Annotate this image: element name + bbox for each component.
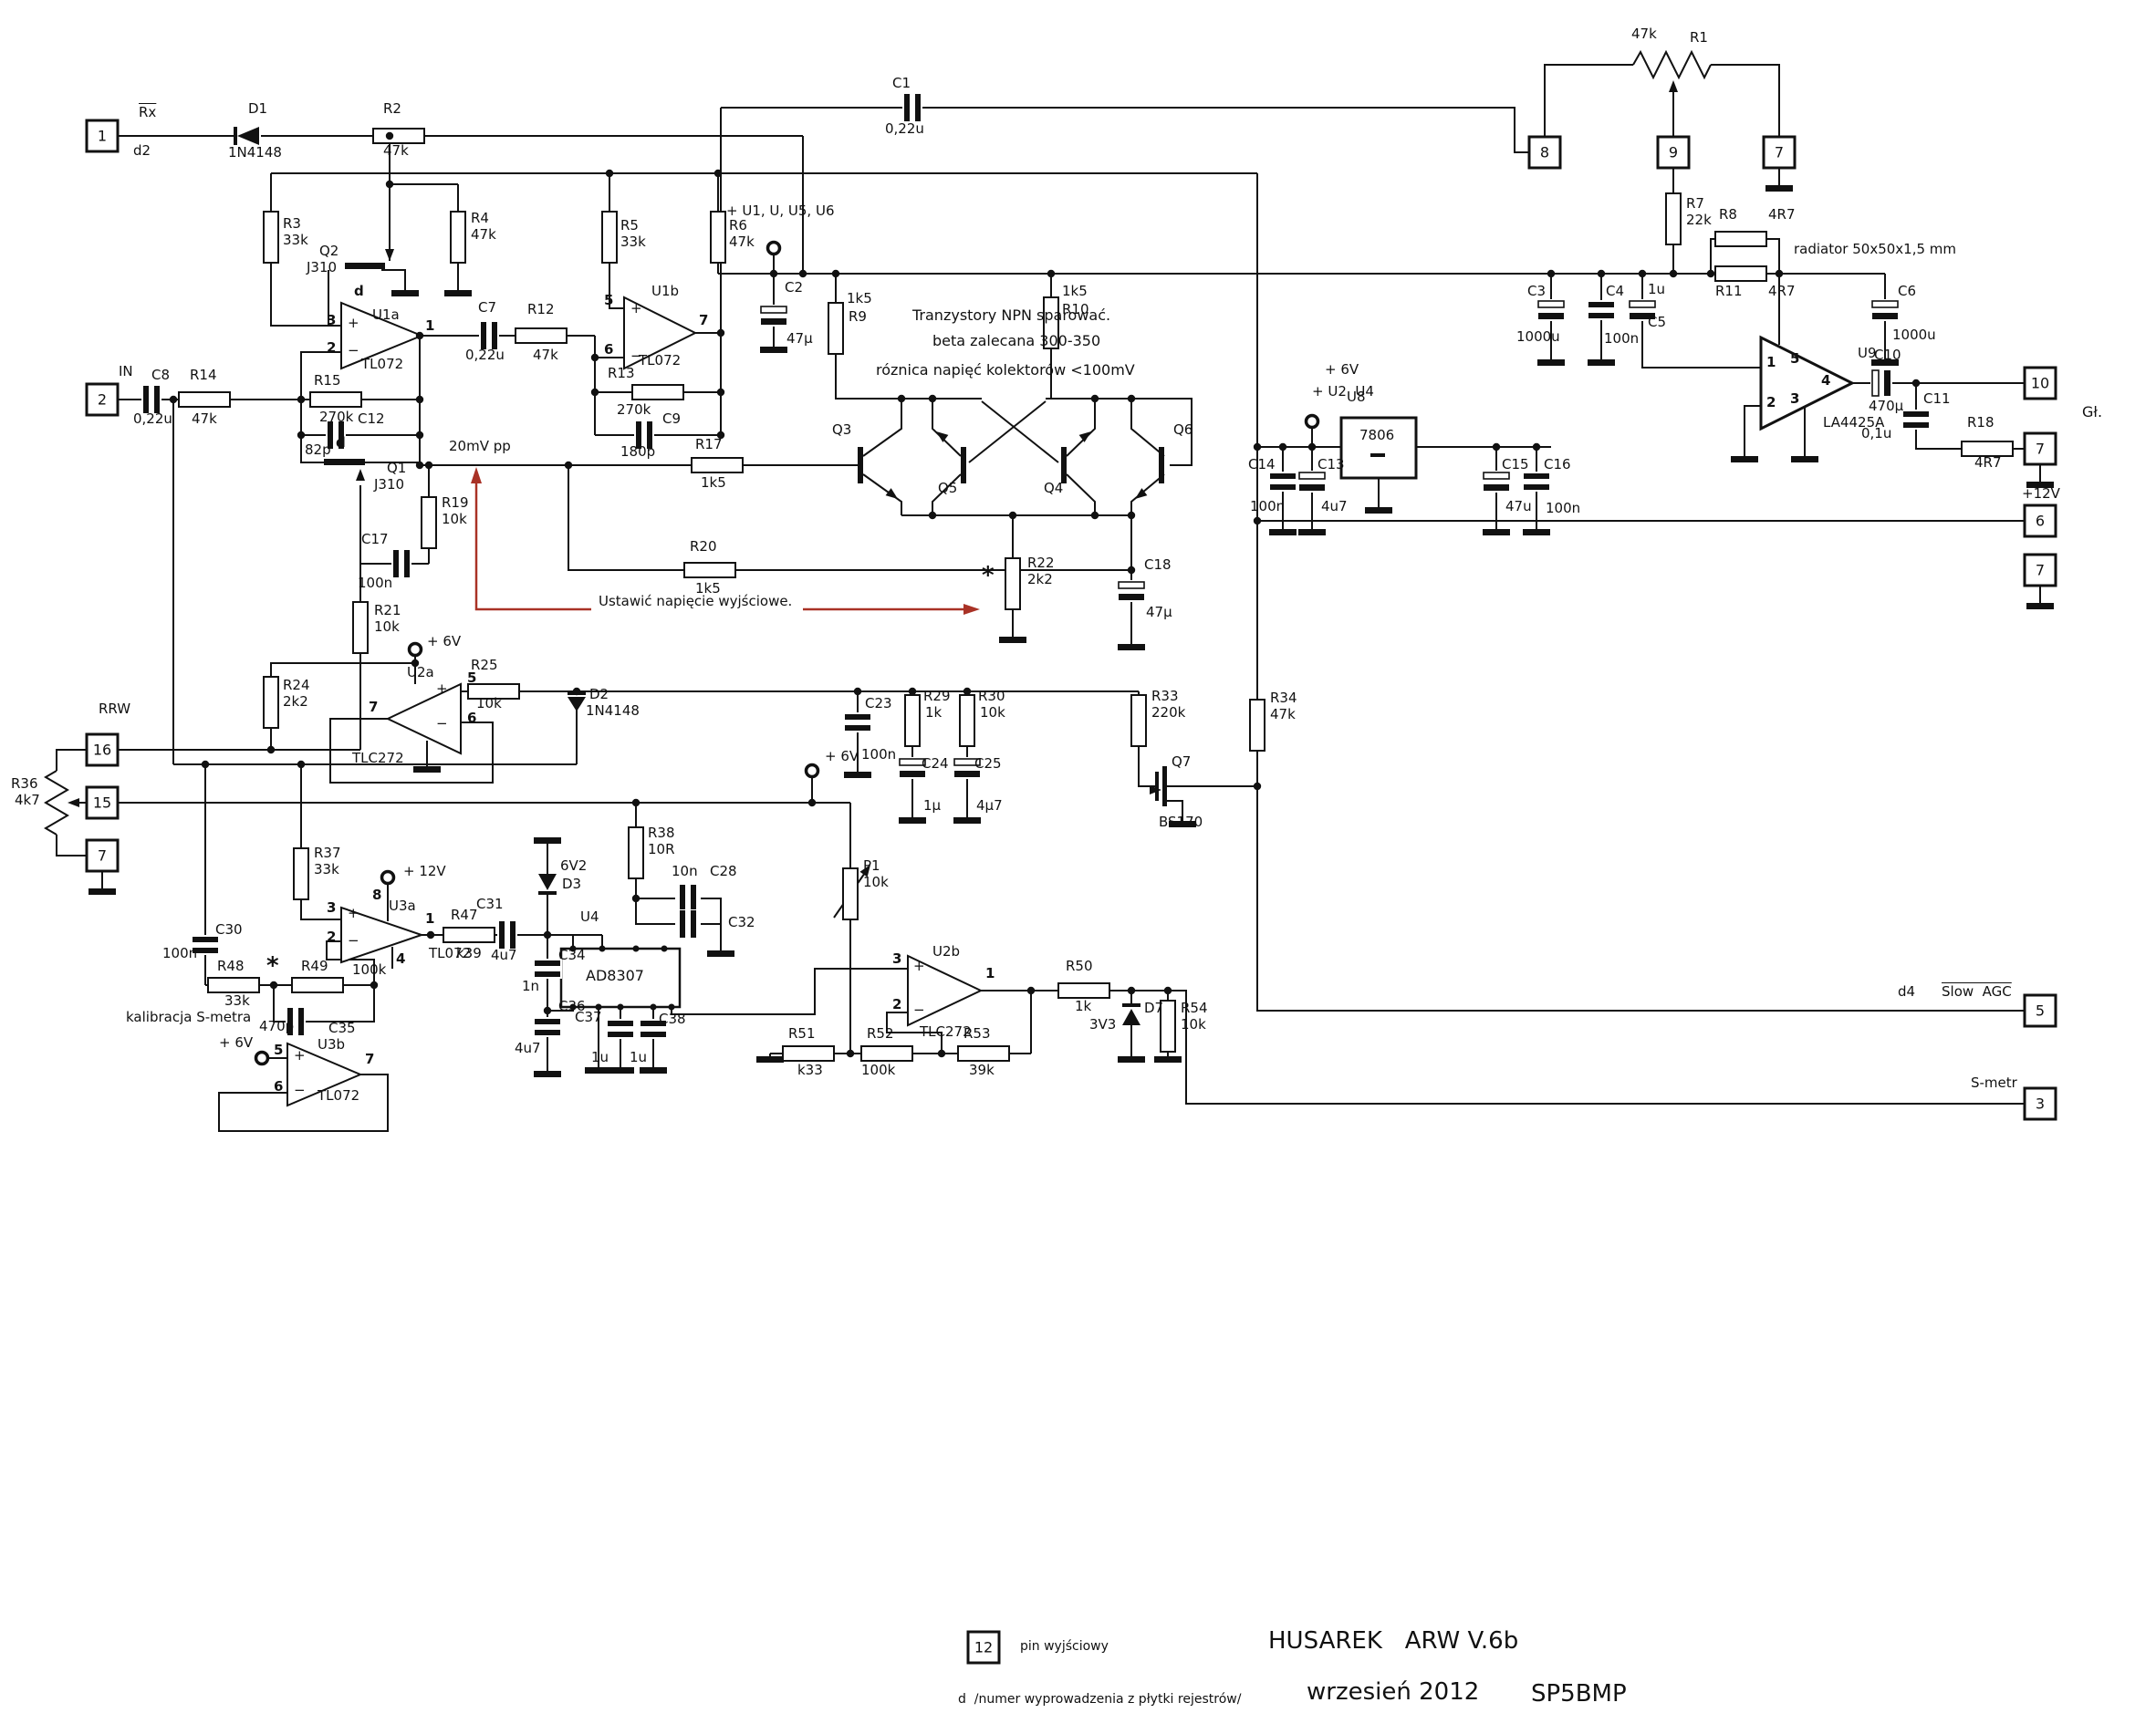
schematic-label: d4	[1898, 985, 1915, 1000]
transistor-Q7-channel-bar	[1162, 766, 1167, 806]
schematic-label: C3	[1527, 285, 1546, 299]
schematic-label: −	[348, 344, 359, 358]
connector-pin-8: 8	[1528, 136, 1562, 170]
schematic-label: R4	[471, 212, 489, 226]
schematic-label: 47k	[1270, 708, 1296, 722]
schematic-label: 4u7	[1321, 500, 1348, 514]
resistor-R13	[632, 385, 683, 400]
resistor-R49	[292, 978, 343, 992]
schematic-label: 0,22u	[885, 122, 924, 137]
schematic-label: +	[348, 907, 359, 921]
transistor-Q4-bar	[1061, 447, 1067, 483]
schematic-label: 47u	[1505, 500, 1532, 514]
annotation-arrow-up	[471, 467, 482, 483]
resistor-R11	[1715, 266, 1766, 281]
resistor-R51	[783, 1046, 834, 1061]
schematic-label: C2	[785, 281, 803, 296]
schematic-label: 1	[425, 912, 434, 927]
schematic-label: 0,22u	[465, 348, 505, 363]
schematic-label: beta zalecana 300-350	[932, 334, 1100, 349]
schematic-label: S-metr	[1971, 1076, 2017, 1091]
schematic-label: 4u7	[491, 949, 517, 963]
schematic-label: + 6V	[427, 635, 461, 649]
schematic-label: C14	[1248, 458, 1276, 472]
schematic-label: U2b	[932, 945, 960, 960]
schematic-label: Q5	[938, 482, 957, 496]
schematic-label: −	[436, 717, 448, 732]
schematic-label: +12V	[2022, 487, 2060, 502]
schematic-label: C38	[659, 1012, 686, 1027]
resistor-R48	[208, 978, 259, 992]
transistor-Q3-bar	[858, 447, 863, 483]
connector-pin-16: 16	[86, 733, 120, 767]
schematic-label: C10	[1874, 348, 1901, 363]
schematic-label: 4R7	[1768, 285, 1796, 299]
connector-pin-7: 7	[1763, 136, 1797, 170]
schematic-label: 1u	[591, 1051, 609, 1065]
transistor-Q7-gate-bar	[1155, 772, 1159, 801]
schematic-label: R22	[1027, 556, 1055, 571]
schematic-label: C8	[151, 369, 170, 383]
schematic-label: k39	[456, 947, 482, 961]
schematic-label: + U1, U, U5, U6	[726, 204, 835, 219]
capacitor-C6	[1870, 299, 1900, 321]
schematic-label: C6	[1898, 285, 1916, 299]
schematic-label: Q1	[387, 462, 406, 476]
resistor-R12	[516, 328, 567, 343]
resistor-R50	[1058, 983, 1109, 998]
schematic-label: 10R	[648, 843, 675, 857]
schematic-label: R47	[451, 908, 478, 923]
schematic-label: R19	[442, 496, 469, 511]
schematic-label: C30	[215, 923, 243, 938]
schematic-label: 10k	[476, 697, 502, 711]
schematic-label: R14	[190, 369, 217, 383]
resistor-R53	[958, 1046, 1009, 1061]
resistor-R33	[1131, 695, 1146, 746]
schematic-label: R29	[923, 690, 951, 704]
schematic-label: + 6V	[1325, 363, 1359, 378]
schematic-label: R53	[963, 1027, 991, 1042]
schematic-label: J310	[374, 478, 404, 493]
schematic-label: 2	[892, 998, 901, 1012]
capacitor-C17	[391, 549, 411, 578]
resistor-R8	[1715, 232, 1766, 246]
schematic-label: 470p	[259, 1020, 294, 1034]
schematic-label: 4k7	[15, 794, 40, 808]
capacitor-C36	[533, 1017, 562, 1037]
schematic-label: R49	[301, 960, 328, 974]
schematic-label: R3	[283, 217, 301, 232]
schematic-label: 1k5	[701, 476, 726, 491]
resistor-R20	[684, 563, 735, 577]
zener-D3	[538, 874, 557, 895]
schematic-label: R7	[1686, 197, 1704, 212]
schematic-label: R38	[648, 826, 675, 841]
q2-gate-arrow	[385, 249, 394, 261]
schematic-label: 6	[274, 1080, 283, 1095]
resistor-R17	[692, 458, 743, 472]
schematic-label: 2k2	[283, 695, 308, 710]
schematic-label: C35	[328, 1022, 356, 1036]
schematic-label: 39k	[969, 1064, 995, 1078]
schematic-label: C9	[662, 412, 681, 427]
schematic-label: 6	[604, 343, 613, 358]
schematic-label: 1N4148	[586, 704, 640, 719]
connector-pin-10: 10	[2024, 367, 2057, 400]
schematic-label: 4R7	[1768, 208, 1796, 223]
capacitor-C4	[1587, 300, 1616, 320]
annotation-arrow-right	[963, 604, 980, 615]
schematic-label: *	[982, 564, 995, 588]
schematic-label: 1000u	[1516, 330, 1560, 345]
schematic-label: 7806	[1359, 429, 1394, 443]
capacitor-C32	[678, 909, 698, 939]
capacitor-C2	[759, 305, 788, 327]
schematic-label: 6	[467, 711, 476, 726]
schematic-label: Tranzystory NPN sparować.	[912, 308, 1110, 324]
resistor-R6	[711, 212, 725, 263]
terminal-6v-u2a	[410, 644, 422, 656]
schematic-label: TL072	[361, 358, 403, 372]
schematic-label: U3b	[318, 1038, 345, 1053]
schematic-label: 3	[327, 314, 336, 328]
transistor-Q2-bar	[345, 263, 385, 269]
schematic-label: C5	[1648, 316, 1666, 330]
potentiometer-zigzags	[46, 52, 1711, 835]
transistor-Q5-bar	[961, 447, 966, 483]
resistor-R22	[1005, 558, 1020, 609]
connector-pin-2: 2	[86, 383, 120, 417]
schematic-label: 47µ	[786, 332, 813, 347]
schematic-label: 7	[365, 1053, 374, 1067]
transistor-Q6-bar	[1159, 447, 1164, 483]
schematic-label: 1n	[522, 980, 539, 994]
schematic-label: 47k	[729, 235, 755, 250]
schematic-label: R6	[729, 219, 747, 234]
schematic-label: 3	[1790, 392, 1799, 407]
schematic-label: 270k	[319, 410, 353, 425]
schematic-label: R15	[314, 374, 341, 389]
schematic-label: −	[294, 1084, 306, 1098]
q1-gate-arrow	[356, 469, 365, 481]
schematic-label: R50	[1066, 960, 1093, 974]
schematic-label: 20mV pp	[449, 440, 511, 454]
schematic-label: C23	[865, 697, 892, 711]
schematic-label: AD8307	[586, 969, 644, 984]
schematic-label: 4	[396, 952, 405, 967]
schematic-label: 0,22u	[133, 412, 172, 427]
schematic-label: D1	[248, 102, 267, 117]
schematic-label: 270k	[617, 403, 651, 418]
capacitor-C1	[902, 93, 922, 122]
schematic-label: 100n	[861, 748, 896, 763]
schematic-label: R20	[690, 540, 717, 555]
schematic-label: 100n	[358, 576, 392, 591]
schematic-label: U2a	[407, 666, 434, 680]
schematic-label: R48	[217, 960, 245, 974]
capacitor-C10	[1870, 369, 1892, 398]
resistor-R9	[828, 303, 843, 354]
schematic-label: 2	[327, 930, 336, 945]
schematic-label: 6V2	[560, 859, 587, 874]
schematic-label: 1000u	[1892, 328, 1936, 343]
project-date: wrzesień 2012	[1307, 1680, 1479, 1705]
schematic-label: +	[436, 682, 448, 697]
schematic-label: + 6V	[219, 1036, 253, 1051]
schematic-label: 100n	[1250, 500, 1285, 514]
schematic-label: 5	[467, 671, 476, 686]
schematic-label: k33	[797, 1064, 823, 1078]
schematic-label: 1µ	[923, 799, 941, 814]
schematic-label: +	[294, 1049, 306, 1064]
potentiometer-P1	[843, 868, 858, 919]
connector-pin-7: 7	[86, 839, 120, 873]
schematic-label: 3	[327, 901, 336, 916]
schematic-label: Ustawić napięcie wyjściowe.	[599, 595, 792, 609]
schematic-label: R36	[11, 777, 38, 792]
capacitor-C37	[606, 1019, 635, 1039]
schematic-label: C11	[1923, 392, 1951, 407]
capacitor-C11	[1901, 410, 1931, 430]
schematic-label: −	[348, 934, 359, 949]
connector-pin-3: 3	[2024, 1087, 2057, 1121]
schematic-label: C4	[1606, 285, 1624, 299]
r1-wiper-arrow	[1669, 80, 1678, 92]
schematic-label: róznica napięć kolektorów <100mV	[876, 363, 1135, 379]
schematic-label: R21	[374, 604, 401, 618]
schematic-label: + 6V	[825, 750, 859, 764]
schematic-label: 4µ7	[976, 799, 1003, 814]
schematic-label: Gł.	[2082, 405, 2102, 420]
resistor-R7	[1666, 193, 1681, 244]
schematic-label: C25	[974, 757, 1002, 772]
schematic-label: 1u	[630, 1051, 647, 1065]
schematic-label: C28	[710, 865, 737, 879]
schematic-label: C17	[361, 533, 389, 547]
zener-D7	[1122, 1003, 1140, 1025]
schematic-label: 47k	[192, 412, 217, 427]
schematic-label: 2	[327, 341, 336, 356]
circuit-schematic: Rxd2D11N4148R247kR333kR447kQ2J310dU1a321…	[0, 0, 2156, 1713]
schematic-label: 1	[425, 319, 434, 334]
project-title: HUSAREK ARW V.6b	[1268, 1629, 1518, 1654]
legend-pin-label: pin wyjściowy	[1020, 1640, 1109, 1654]
schematic-label: Q6	[1173, 423, 1193, 438]
schematic-label: 1	[1766, 356, 1776, 370]
schematic-label: 10k	[442, 513, 467, 527]
schematic-label: 7	[699, 314, 708, 328]
schematic-label: R52	[867, 1027, 894, 1042]
schematic-label: 2k2	[1027, 573, 1053, 587]
schematic-label: J310	[307, 261, 337, 275]
schematic-label: R34	[1270, 691, 1297, 706]
schematic-label: 33k	[620, 235, 646, 250]
schematic-label: d	[354, 285, 364, 299]
resistor-R14	[179, 392, 230, 407]
schematic-label: R30	[978, 690, 1005, 704]
schematic-label: U3a	[389, 899, 416, 914]
schematic-label: R2	[383, 102, 401, 117]
schematic-label: C31	[476, 898, 504, 912]
schematic-label: C16	[1544, 458, 1571, 472]
schematic-label: 47k	[471, 228, 496, 243]
schematic-label: U4	[580, 910, 599, 925]
connector-pin-15: 15	[86, 786, 120, 820]
schematic-label: TLC272	[352, 752, 404, 766]
schematic-label: C18	[1144, 558, 1172, 573]
capacitor-C23	[843, 712, 872, 732]
schematic-label: U1a	[372, 308, 400, 323]
capacitor-C31	[497, 920, 517, 950]
schematic-label: R17	[695, 438, 723, 452]
schematic-label: 100n	[1546, 502, 1580, 516]
schematic-label: R51	[788, 1027, 816, 1042]
schematic-label: 1k5	[847, 292, 872, 306]
u8-gnd-mark	[1370, 453, 1385, 457]
schematic-label: 0,1u	[1861, 427, 1891, 441]
connector-pin-1: 1	[86, 119, 120, 153]
resistor-R24	[264, 677, 278, 728]
capacitor-C18	[1117, 580, 1146, 602]
schematic-label: R1	[1690, 31, 1708, 46]
schematic-label: kalibracja S-metra	[126, 1011, 251, 1025]
resistor-R15	[310, 392, 361, 407]
schematic-label: D2	[589, 688, 609, 702]
schematic-label: R33	[1151, 690, 1179, 704]
resistor-R52	[861, 1046, 912, 1061]
capacitor-C16	[1522, 472, 1551, 492]
legend-d-note: d /numer wyprowadzenia z płytki rejestró…	[958, 1693, 1241, 1707]
schematic-label: 7	[369, 701, 378, 715]
resistor-R30	[960, 695, 974, 746]
schematic-label: 22k	[1686, 213, 1712, 228]
schematic-label: 47k	[533, 348, 558, 363]
schematic-label: C7	[478, 301, 496, 316]
resistor-R21	[353, 602, 368, 653]
author-callsign: SP5BMP	[1531, 1682, 1627, 1707]
schematic-label: 33k	[224, 994, 250, 1009]
schematic-label: 10k	[374, 620, 400, 635]
connector-pin-7: 7	[2024, 554, 2057, 587]
schematic-label: Q4	[1044, 482, 1063, 496]
resistor-R29	[905, 695, 920, 746]
schematic-label: R9	[849, 310, 867, 325]
schematic-label: R8	[1719, 208, 1737, 223]
capacitor-C15	[1482, 471, 1511, 493]
schematic-label: R37	[314, 846, 341, 861]
schematic-label: R11	[1715, 285, 1743, 299]
resistor-R34	[1250, 700, 1265, 751]
schematic-label: C1	[892, 77, 911, 91]
schematic-label: 100k	[861, 1064, 895, 1078]
terminal-6v-u3b	[256, 1053, 268, 1064]
capacitor-C28	[678, 884, 698, 913]
q4-arrow	[1079, 428, 1094, 442]
schematic-label: +	[913, 960, 925, 974]
schematic-label: 10k	[980, 706, 1005, 721]
schematic-label: U1b	[651, 285, 679, 299]
schematic-label: IN	[119, 365, 133, 379]
schematic-label: d	[336, 436, 346, 451]
terminal-u1-supply	[768, 243, 780, 254]
terminal-6v-agc	[807, 765, 818, 777]
schematic-label: P1	[863, 859, 880, 874]
schematic-label: Q2	[319, 244, 339, 259]
schematic-label: 1k	[1075, 1000, 1091, 1014]
resistor-R19	[422, 497, 436, 548]
schematic-label: d2	[133, 144, 151, 159]
schematic-label: R25	[471, 659, 498, 673]
schematic-label: R24	[283, 679, 310, 693]
connector-pin-7: 7	[2024, 432, 2057, 466]
capacitor-C3	[1536, 299, 1566, 321]
schematic-label: 47k	[1631, 27, 1657, 42]
schematic-label: C34	[558, 949, 586, 963]
schematic-label: 1	[985, 967, 995, 981]
annotation-line	[476, 482, 965, 609]
q5-arrow	[933, 428, 948, 442]
schematic-label: +	[630, 302, 642, 317]
connector-pin-9: 9	[1657, 136, 1691, 170]
schematic-label: −	[913, 1003, 925, 1018]
schematic-label: 5	[604, 294, 613, 308]
schematic-label: 3V3	[1089, 1018, 1116, 1033]
schematic-label: TL072	[318, 1089, 359, 1104]
schematic-label: 8	[372, 888, 381, 903]
schematic-label: 4u7	[515, 1042, 541, 1056]
schematic-label: 100k	[352, 963, 386, 978]
resistor-R47	[443, 928, 495, 942]
schematic-label: RRW	[99, 702, 130, 717]
schematic-label: 10k	[863, 876, 889, 890]
schematic-label: 2	[1766, 396, 1776, 410]
schematic-label: D3	[562, 877, 581, 892]
resistor-R5	[602, 212, 617, 263]
schematic-label: 100n	[162, 947, 197, 961]
schematic-label: 10n	[672, 865, 698, 879]
schematic-label: 1u	[1648, 283, 1665, 297]
resistor-R38	[629, 827, 643, 878]
schematic-label: *	[266, 954, 279, 979]
schematic-label: C13	[1318, 458, 1345, 472]
schematic-label: Q7	[1172, 755, 1191, 770]
resistor-R2	[373, 129, 424, 143]
opamp-U2a	[388, 684, 461, 753]
schematic-label: C24	[922, 757, 949, 772]
schematic-label: C37	[575, 1011, 602, 1025]
resistor-R4	[451, 212, 465, 263]
schematic-label: +	[348, 317, 359, 331]
connector-pin-6: 6	[2024, 504, 2057, 538]
schematic-label: 1k	[925, 706, 942, 721]
resistor-R37	[294, 848, 308, 899]
terminal-6v-u8	[1307, 416, 1318, 428]
schematic-label: 82p	[305, 443, 331, 458]
schematic-label: radiator 50x50x1,5 mm	[1794, 243, 1956, 257]
schematic-label: C32	[728, 916, 755, 930]
schematic-label: Slow AGC	[1942, 985, 2012, 1000]
terminal-12v-u3a	[382, 872, 394, 884]
schematic-label: 470µ	[1869, 400, 1903, 414]
resistor-R3	[264, 212, 278, 263]
schematic-label: 1N4148	[228, 146, 282, 161]
schematic-label: D7	[1144, 1002, 1163, 1016]
schematic-label: R13	[608, 367, 635, 381]
diode-D1	[234, 127, 259, 145]
schematic-label: 33k	[283, 234, 308, 248]
transistor-Q1-bar	[324, 459, 365, 465]
